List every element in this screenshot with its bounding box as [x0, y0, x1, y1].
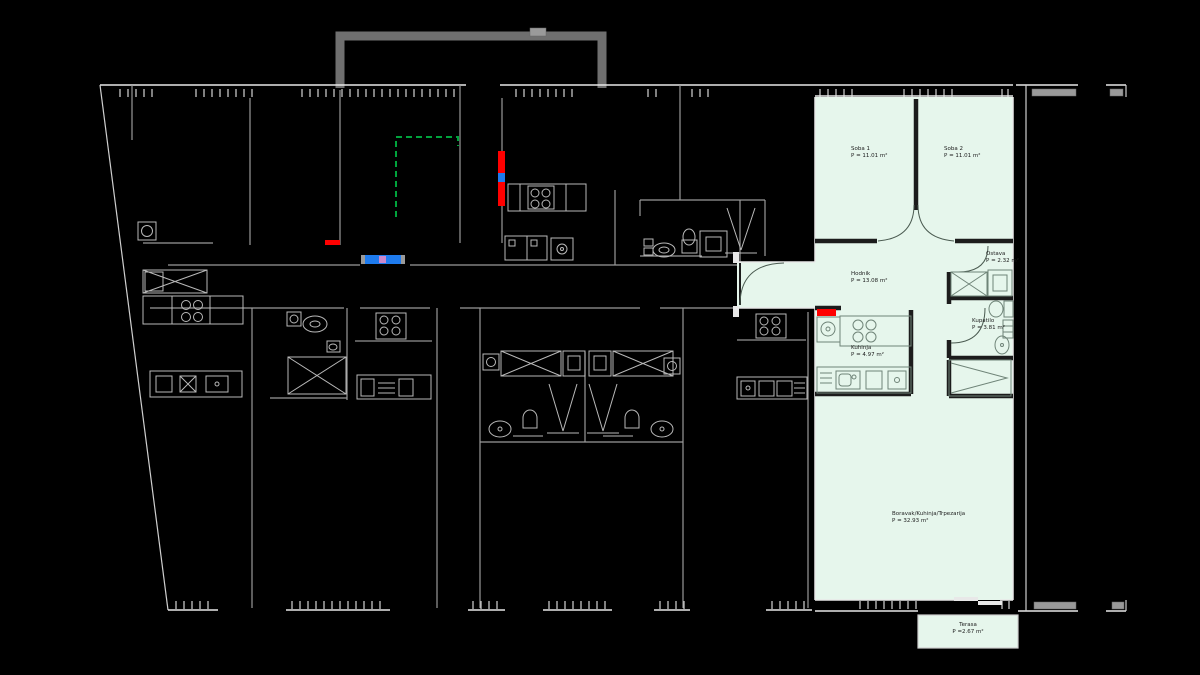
entrance-canopy [340, 28, 602, 88]
canopy-tab [530, 28, 546, 36]
window-ticks-top [120, 89, 708, 97]
red-marker [325, 240, 340, 245]
wall-hatch [1032, 89, 1076, 96]
red-riser-marker [498, 151, 505, 206]
toilet-icon [489, 410, 673, 437]
room-label-soba-1: Soba 1 P = 11.01 m² [851, 146, 887, 160]
window-ticks-bottom [176, 601, 804, 609]
wall-hatch [1110, 89, 1123, 96]
coat-hanger-icon [725, 208, 757, 253]
room-area: P = 13.08 m² [851, 278, 887, 285]
kitchen-sink-icon [150, 371, 242, 397]
washing-machine-icon [138, 222, 156, 240]
floor-plan-drawing [0, 0, 1200, 675]
stove-icon [355, 313, 432, 341]
room-label-kupatilo: Kupatilo P = 3.81 m² [972, 318, 1005, 332]
room-label-kuhinja: Kuhinja P = 4.97 m² [851, 345, 884, 359]
stove-icon [508, 184, 586, 211]
floor-plan-canvas: Soba 1 P = 11.01 m² Soba 2 P = 11.01 m² … [0, 0, 1200, 675]
room-name: Hodnik [851, 271, 887, 278]
interior-walls [132, 85, 808, 608]
green-dashed-route [396, 137, 458, 217]
wardrobe-x-icon [143, 270, 207, 293]
kitchen-sink-icon [357, 375, 431, 399]
room-name: Kuhinja [851, 345, 884, 352]
red-marker [817, 309, 836, 316]
highlighted-apartment[interactable] [733, 89, 1018, 648]
room-area: P = 3.81 m² [972, 325, 1005, 332]
room-label-ostava: Ostava P = 2.32 m² [986, 251, 1019, 265]
furniture-symbols [138, 184, 807, 437]
toilet-icon [287, 312, 340, 352]
stove-icon [143, 296, 243, 324]
wall-hatch [1034, 602, 1076, 609]
wall-hatch [1112, 602, 1124, 609]
stove-icon [737, 314, 806, 340]
sliding-door [978, 601, 1002, 605]
room-area: P = 4.97 m² [851, 352, 884, 359]
double-sink-icon [505, 236, 573, 260]
sliding-door [954, 597, 978, 601]
room-name: Kupatilo [972, 318, 1005, 325]
room-label-soba-2: Soba 2 P = 11.01 m² [944, 146, 980, 160]
wardrobe-x-icon [288, 357, 346, 394]
coat-hanger-icon [547, 384, 619, 433]
room-name: Ostava [986, 251, 1019, 258]
room-name: Soba 2 [944, 146, 980, 153]
room-name: Boravak/Kuhinja/Trpezarija [892, 511, 965, 518]
kitchen-sink-icon [737, 377, 807, 399]
room-name: Terasa [918, 622, 1018, 629]
room-label-hodnik: Hodnik P = 13.08 m² [851, 271, 887, 285]
room-area: P =2.67 m² [918, 629, 1018, 636]
room-area: P = 2.32 m² [986, 258, 1019, 265]
room-area: P = 11.01 m² [944, 153, 980, 160]
room-label-boravak: Boravak/Kuhinja/Trpezarija P = 32.93 m² [892, 511, 965, 525]
electrical-panel-marker [361, 255, 405, 264]
room-area: P = 11.01 m² [851, 153, 887, 160]
utility-markers [325, 137, 505, 264]
wardrobe-row [483, 351, 680, 376]
room-name: Soba 1 [851, 146, 887, 153]
room-area: P = 32.93 m² [892, 518, 965, 525]
room-label-terasa: Terasa P =2.67 m² [918, 622, 1018, 636]
entry-corridor-area [737, 262, 815, 308]
